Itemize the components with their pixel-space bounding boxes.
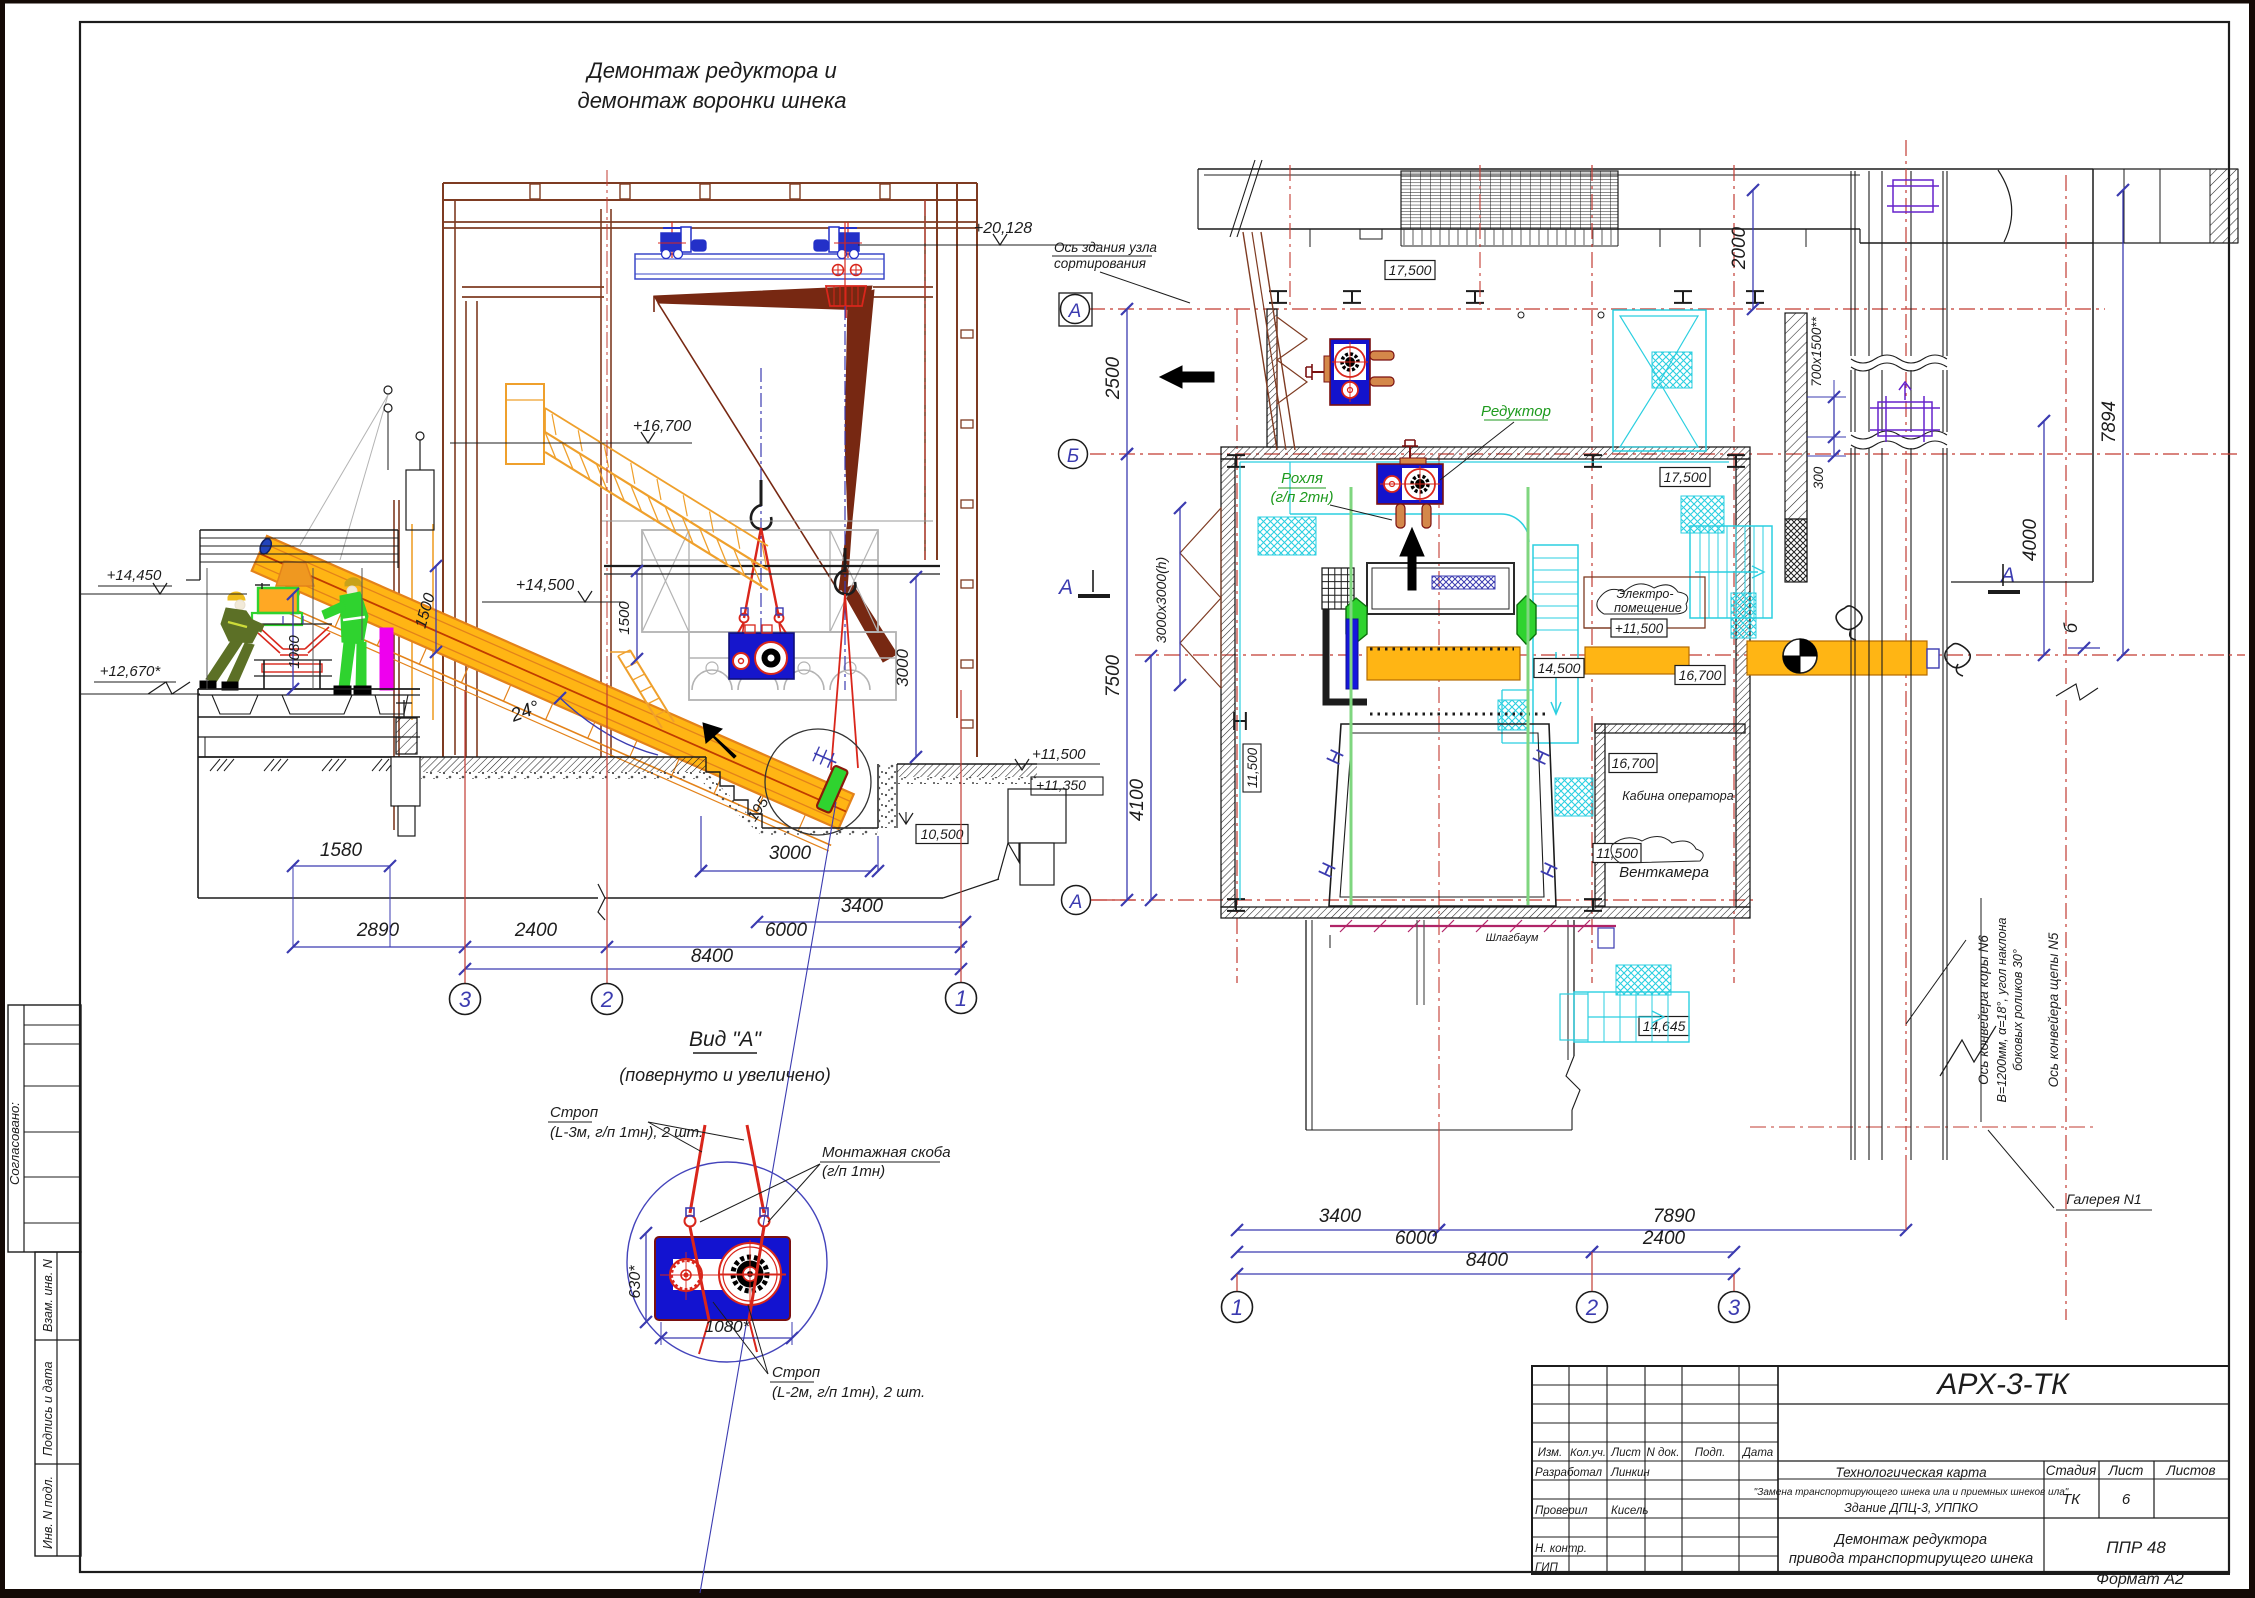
svg-text:3: 3	[1728, 1295, 1741, 1320]
svg-text:2: 2	[1585, 1295, 1598, 1320]
svg-text:2400: 2400	[514, 920, 558, 941]
svg-text:Подп.: Подп.	[1695, 1447, 1726, 1459]
svg-text:3000х3000(h): 3000х3000(h)	[1153, 557, 1169, 643]
svg-text:14,500: 14,500	[1538, 660, 1581, 676]
svg-text:2400: 2400	[1642, 1228, 1686, 1249]
svg-text:2500: 2500	[1103, 356, 1124, 400]
svg-text:Демонтаж редуктора: Демонтаж редуктора	[1833, 1532, 1987, 1548]
svg-text:Взам. инв. N: Взам. инв. N	[41, 1258, 55, 1332]
svg-text:3: 3	[459, 987, 472, 1012]
svg-text:Кисель: Кисель	[1611, 1505, 1648, 1517]
svg-text:8400: 8400	[691, 946, 734, 967]
svg-text:Изм.: Изм.	[1538, 1447, 1563, 1459]
svg-text:+11,350: +11,350	[1036, 777, 1086, 793]
svg-text:Кабина оператора: Кабина оператора	[1622, 789, 1733, 803]
svg-text:+11,500: +11,500	[1615, 621, 1664, 636]
svg-text:Стадия: Стадия	[2046, 1463, 2097, 1478]
svg-text:3400: 3400	[1319, 1206, 1362, 1227]
svg-text:2890: 2890	[356, 920, 400, 941]
svg-text:Вид "А": Вид "А"	[689, 1028, 763, 1051]
svg-text:1500: 1500	[616, 601, 633, 635]
svg-text:(г/п 1тн): (г/п 1тн)	[822, 1163, 885, 1180]
svg-text:(L-2м, г/п 1тн), 2 шт.: (L-2м, г/п 1тн), 2 шт.	[772, 1384, 925, 1401]
svg-text:17,500: 17,500	[1389, 262, 1432, 278]
svg-text:"Замена транспортирующего шнек: "Замена транспортирующего шнека ила и пр…	[1754, 1487, 2069, 1498]
svg-text:2: 2	[600, 987, 613, 1012]
svg-text:17,500: 17,500	[1664, 469, 1707, 485]
svg-text:10,500: 10,500	[921, 826, 964, 842]
svg-text:16,700: 16,700	[1679, 667, 1722, 683]
svg-text:Кол.уч.: Кол.уч.	[1570, 1447, 1606, 1459]
svg-text:4100: 4100	[1127, 778, 1148, 821]
svg-text:3400: 3400	[841, 896, 884, 917]
svg-text:АРХ-3-ТК: АРХ-3-ТК	[1935, 1368, 2071, 1401]
svg-text:Ось конвейера щепы N5: Ось конвейера щепы N5	[2046, 932, 2061, 1087]
svg-text:Галерея N1: Галерея N1	[2066, 1191, 2141, 1207]
svg-text:7894: 7894	[2099, 401, 2120, 443]
svg-text:7500: 7500	[1103, 654, 1124, 697]
svg-text:1080: 1080	[286, 635, 303, 669]
svg-text:300: 300	[1811, 466, 1826, 489]
svg-text:+11,500: +11,500	[1032, 746, 1086, 763]
svg-text:3000: 3000	[893, 649, 912, 687]
svg-text:700х1500**: 700х1500**	[1809, 316, 1824, 387]
svg-text:Согласовано:: Согласовано:	[7, 1102, 22, 1185]
svg-text:Листов: Листов	[2165, 1463, 2215, 1478]
svg-text:11,500: 11,500	[1245, 747, 1260, 788]
svg-text:Лист: Лист	[2108, 1463, 2144, 1478]
svg-text:Проверил: Проверил	[1535, 1505, 1588, 1517]
svg-text:6: 6	[2122, 1491, 2131, 1508]
svg-text:Шлагбаум: Шлагбаум	[1486, 932, 1539, 944]
svg-text:+12,670*: +12,670*	[100, 663, 162, 680]
svg-text:Н. контр.: Н. контр.	[1535, 1543, 1587, 1555]
svg-text:Формат А2: Формат А2	[2096, 1571, 2184, 1588]
svg-text:ГИП: ГИП	[1535, 1562, 1558, 1574]
svg-text:16,700: 16,700	[1612, 755, 1655, 771]
svg-text:Ось конвейера коры N6: Ось конвейера коры N6	[1976, 935, 1991, 1085]
svg-text:Редуктор: Редуктор	[1481, 403, 1551, 420]
svg-text:8400: 8400	[1466, 1250, 1509, 1271]
svg-text:Здание ДПЦ-3, УППКО: Здание ДПЦ-3, УППКО	[1844, 1501, 1978, 1515]
svg-text:Демонтаж редуктора и: Демонтаж редуктора и	[584, 58, 836, 83]
svg-text:Разработал: Разработал	[1535, 1467, 1603, 1479]
svg-text:Линкин: Линкин	[1610, 1467, 1650, 1479]
svg-text:сортирования: сортирования	[1054, 256, 1146, 271]
svg-text:А: А	[1069, 892, 1083, 913]
svg-text:Лист: Лист	[1610, 1447, 1641, 1459]
svg-text:А: А	[1999, 564, 2015, 587]
svg-text:4000: 4000	[2020, 518, 2041, 561]
svg-text:1580: 1580	[320, 840, 363, 861]
svg-text:Б: Б	[1067, 446, 1079, 467]
svg-text:1: 1	[955, 986, 967, 1011]
svg-text:привода транспортирущего шнека: привода транспортирущего шнека	[1789, 1551, 2033, 1567]
svg-text:демонтаж воронки шнека: демонтаж воронки шнека	[578, 88, 847, 113]
svg-text:Строп: Строп	[550, 1104, 598, 1121]
svg-text:+14,500: +14,500	[516, 577, 574, 594]
svg-text:Рохля: Рохля	[1281, 470, 1323, 487]
svg-text:помещение: помещение	[1614, 601, 1682, 615]
svg-text:ТК: ТК	[2062, 1491, 2081, 1508]
svg-text:б: б	[2061, 622, 2081, 633]
svg-text:6000: 6000	[1395, 1228, 1438, 1249]
svg-text:1: 1	[1231, 1295, 1243, 1320]
svg-text:Венткамера: Венткамера	[1619, 864, 1709, 881]
svg-text:(повернуто и увеличено): (повернуто и увеличено)	[619, 1065, 830, 1085]
svg-text:Электро-: Электро-	[1616, 587, 1673, 601]
svg-text:1080*: 1080*	[705, 1317, 751, 1336]
svg-text:7890: 7890	[1653, 1206, 1696, 1227]
svg-text:А: А	[1068, 301, 1082, 322]
svg-text:6000: 6000	[765, 920, 808, 941]
svg-text:(L-3м, г/п 1тн), 2 шт.: (L-3м, г/п 1тн), 2 шт.	[550, 1124, 703, 1141]
svg-text:14,645: 14,645	[1643, 1018, 1686, 1034]
svg-text:Инв. N подл.: Инв. N подл.	[41, 1476, 55, 1549]
svg-text:В=1200мм, α=18°, угол наклона: В=1200мм, α=18°, угол наклона	[1995, 918, 2009, 1103]
svg-text:+20,128: +20,128	[974, 220, 1032, 237]
svg-text:Подпись и дата: Подпись и дата	[41, 1361, 55, 1456]
svg-text:Технологическая карта: Технологическая карта	[1835, 1465, 1987, 1480]
svg-text:Ось здания узла: Ось здания узла	[1054, 240, 1157, 255]
svg-text:Монтажная скоба: Монтажная скоба	[822, 1144, 951, 1161]
svg-text:+14,450: +14,450	[107, 567, 162, 584]
svg-text:11,500: 11,500	[1596, 845, 1638, 861]
svg-text:Дата: Дата	[1741, 1447, 1773, 1459]
svg-text:ППР 48: ППР 48	[2106, 1538, 2166, 1557]
svg-text:(г/п 2тн): (г/п 2тн)	[1270, 489, 1333, 506]
svg-text:боковых роликов 30°: боковых роликов 30°	[2011, 949, 2025, 1071]
svg-text:630*: 630*	[627, 1265, 644, 1299]
svg-text:3000: 3000	[769, 843, 812, 864]
svg-text:Строп: Строп	[772, 1364, 820, 1381]
svg-text:N док.: N док.	[1647, 1447, 1680, 1459]
svg-text:2000: 2000	[1729, 226, 1750, 270]
svg-text:А: А	[1057, 576, 1073, 599]
